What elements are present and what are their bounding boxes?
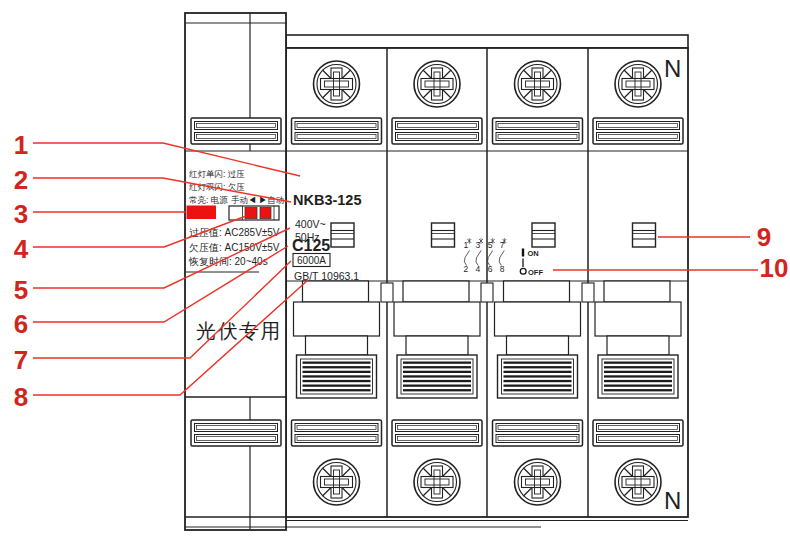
vent-slots	[292, 420, 382, 446]
vent-slots	[593, 420, 683, 446]
module-pin	[582, 283, 594, 302]
vent-slots	[593, 118, 683, 144]
model-text: NKB3-125	[293, 192, 362, 208]
module-pin	[381, 283, 393, 302]
breaker-diagram: N N NKB3-125 400V~ 50Hz C125 6000A GB/T …	[0, 0, 790, 550]
terminal-screw	[414, 61, 460, 107]
toggle-handle	[633, 223, 656, 247]
callout-number-10: 10	[760, 253, 789, 283]
pole-module-neutral: N N	[593, 55, 683, 514]
arc-chamber	[595, 281, 681, 398]
module-pin	[481, 283, 493, 302]
application-label: 光伏专用	[196, 320, 282, 342]
pole-module-3	[493, 61, 583, 505]
callout-number-9: 9	[757, 222, 771, 252]
terminal-screw	[515, 459, 561, 505]
breaker-diagram-page: N N NKB3-125 400V~ 50Hz C125 6000A GB/T …	[0, 0, 790, 550]
callout-number-8: 8	[14, 382, 28, 412]
curve-rating-text: C125	[292, 237, 330, 254]
vent-slots	[191, 118, 281, 144]
mode-switch-label: 手动◀ ▶自动	[231, 195, 284, 205]
arc-chamber	[294, 281, 380, 398]
toggle-handle	[432, 223, 455, 247]
terminal-screw	[414, 459, 460, 505]
terminal-screw	[314, 459, 360, 505]
vent-slots	[493, 420, 583, 446]
arc-chamber	[394, 281, 480, 398]
neutral-label-top: N	[664, 55, 681, 82]
standard-text: GB/T 10963.1	[294, 270, 359, 282]
toggle-handle	[532, 223, 555, 247]
steady-on-label: 常亮: 电源	[189, 195, 228, 205]
pole-module-2	[392, 61, 482, 505]
vent-slots	[292, 118, 382, 144]
power-led-indicator	[187, 206, 217, 220]
on-symbol-bar	[522, 249, 524, 257]
callout-number-6: 6	[14, 309, 28, 339]
red-single-flash-label: 红灯单闪: 过压	[189, 169, 245, 179]
undervoltage-value-label: 欠压值: AC150V±5V	[189, 242, 280, 253]
slider-knob-red	[245, 207, 257, 218]
terminal-screw	[615, 459, 661, 505]
callout-number-5: 5	[14, 275, 28, 305]
breaking-capacity-text: 6000A	[297, 255, 326, 266]
arc-chamber	[495, 281, 581, 398]
vent-slots	[392, 420, 482, 446]
callout-number-3: 3	[14, 199, 28, 229]
on-label: ON	[528, 249, 539, 258]
red-double-flash-label: 红灯双闪: 欠压	[189, 182, 245, 192]
callout-number-7: 7	[14, 345, 28, 375]
terminal-screw	[615, 61, 661, 107]
voltage-text: 400V~	[295, 218, 326, 230]
slider-knob-red	[260, 207, 271, 218]
callout-number-1: 1	[14, 130, 28, 160]
callout-number-4: 4	[14, 234, 29, 264]
toggle-handle	[331, 223, 354, 247]
vent-slots	[392, 118, 482, 144]
top-cap-band	[286, 35, 688, 48]
terminal-screw	[314, 61, 360, 107]
pole-assembly: N N NKB3-125 400V~ 50Hz C125 6000A GB/T …	[286, 35, 688, 521]
off-label: OFF	[528, 268, 543, 277]
terminal-screw	[515, 61, 561, 107]
vent-slots	[493, 118, 583, 144]
neutral-label-bottom: N	[664, 487, 681, 514]
manual-auto-slider	[229, 206, 279, 220]
callout-number-2: 2	[14, 165, 28, 195]
vent-slots	[191, 420, 281, 446]
